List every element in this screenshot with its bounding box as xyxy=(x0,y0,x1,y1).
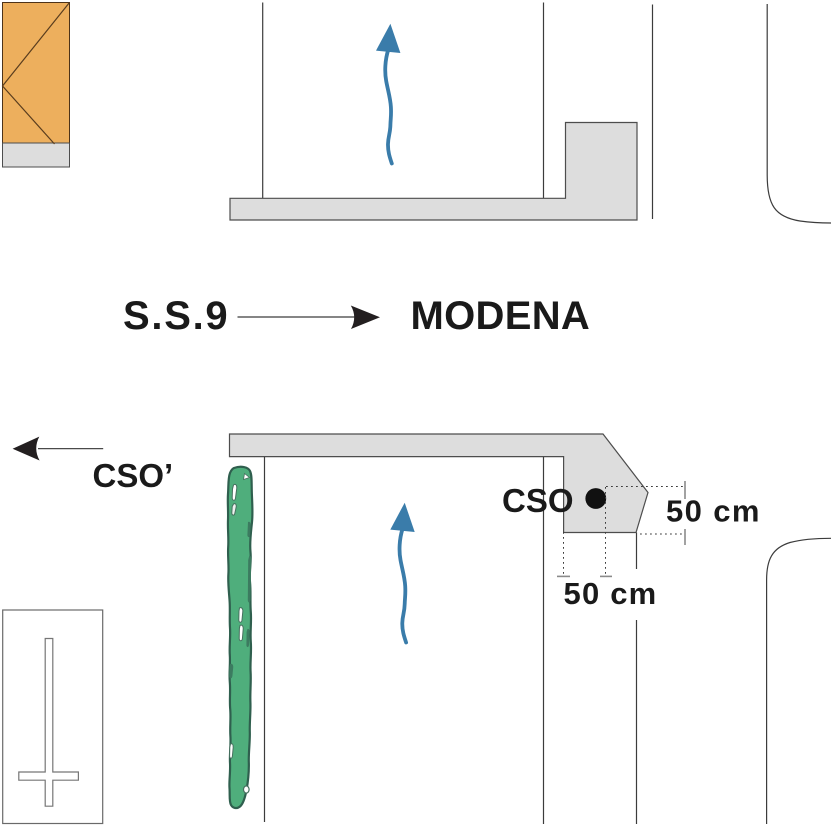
svg-text:MODENA: MODENA xyxy=(411,294,591,338)
svg-text:S.S.9: S.S.9 xyxy=(123,294,229,338)
svg-text:CSO: CSO xyxy=(502,482,574,519)
svg-text:CSO’: CSO’ xyxy=(93,457,174,494)
svg-text:50 cm: 50 cm xyxy=(666,494,761,529)
svg-text:50 cm: 50 cm xyxy=(564,576,658,611)
